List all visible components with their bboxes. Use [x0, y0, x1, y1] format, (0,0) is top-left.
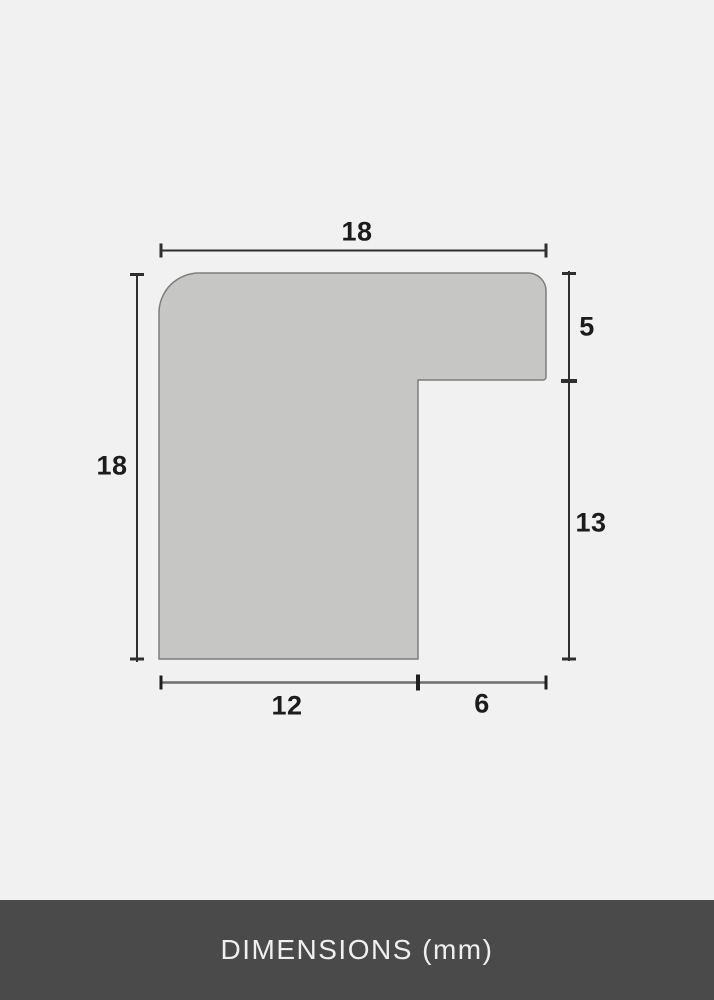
diagram-canvas: 18 18 5 13 12 6	[0, 0, 714, 900]
dim-label-top-width: 18	[341, 217, 372, 248]
dim-line-right-heights	[561, 271, 577, 661]
dim-line-left-height	[130, 273, 144, 662]
footer-title: DIMENSIONS (mm)	[221, 934, 494, 966]
dim-label-right-lower: 13	[575, 508, 606, 539]
dim-label-bottom-rabbet: 6	[474, 689, 490, 720]
footer-bar: DIMENSIONS (mm)	[0, 900, 714, 1000]
dim-label-left-height: 18	[96, 451, 127, 482]
dim-label-right-upper: 5	[579, 312, 595, 343]
profile-shape	[159, 273, 546, 659]
dim-label-bottom-inner: 12	[271, 691, 302, 722]
frame-profile-dimension-diagram: 18 18 5 13 12 6 DIMENSIONS (mm)	[0, 0, 714, 1000]
